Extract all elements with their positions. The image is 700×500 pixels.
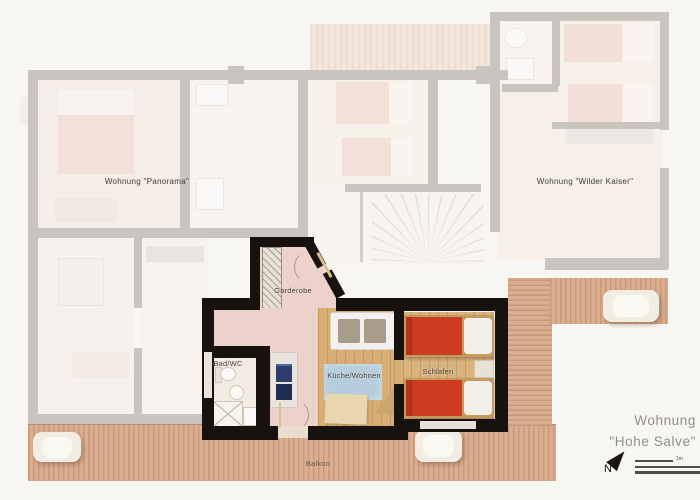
faded-kitchen-counter <box>566 128 654 144</box>
lounge-chair <box>603 290 659 322</box>
sofa-cushion <box>364 319 386 343</box>
faded-fixture <box>196 84 228 106</box>
wilder-kaiser-label: Wohnung "Wilder Kaiser" <box>520 177 650 187</box>
lounge-chair <box>33 432 81 462</box>
apartment-wall <box>212 346 258 358</box>
apartment-wall <box>308 426 408 440</box>
faded-wall <box>360 192 363 262</box>
faded-bed <box>564 24 654 62</box>
scale-bar-line <box>635 466 700 468</box>
hohe-salve-label-line1: Wohnung <box>586 410 696 431</box>
faded-wall <box>134 348 142 416</box>
faded-spiral-stairs <box>372 194 484 262</box>
balcony-door-arc <box>279 400 309 430</box>
hohe-salve-label-line2: "Hohe Salve" <box>586 431 696 452</box>
apartment-wall <box>336 298 508 311</box>
floor-plan: Wohnung "Panorama" Wohnung "Wilder Kaise… <box>0 0 700 500</box>
bad-wc-label: Bad/WC <box>204 359 252 368</box>
faded-wall <box>490 12 668 21</box>
toilet-bowl <box>220 367 236 381</box>
apartment-wall <box>202 426 278 440</box>
faded-wall <box>28 70 38 426</box>
scale-label: 1m <box>676 456 683 462</box>
faded-bed <box>336 82 412 124</box>
lounge-chair <box>415 430 462 462</box>
balcony-deck-right-vertical <box>508 278 552 426</box>
faded-wall-pier <box>228 66 244 84</box>
faded-wall <box>660 12 669 130</box>
hohe-salve-label: Wohnung "Hohe Salve" <box>586 410 696 452</box>
bed-top-blanket <box>406 317 462 355</box>
kitchen-appliance-oven <box>276 364 292 382</box>
faded-wall <box>298 78 308 230</box>
faded-sofa <box>72 352 130 378</box>
faded-counter <box>146 246 204 262</box>
faded-wall <box>345 184 481 192</box>
schlafen-label: Schlafen <box>404 367 472 376</box>
faded-wall <box>545 258 668 270</box>
apartment-wall <box>394 298 404 360</box>
bed-top-pillow <box>464 318 492 354</box>
sofa-cushion <box>338 319 360 343</box>
nightstand <box>474 360 494 378</box>
faded-bed <box>568 84 652 124</box>
balkon-label: Balkon <box>280 459 356 468</box>
apartment-wall <box>256 346 270 428</box>
bed-bottom-blanket <box>406 380 462 416</box>
apartment-wall <box>394 384 404 428</box>
faded-sofa <box>55 198 117 222</box>
kitchen-appliance-fridge <box>276 384 292 400</box>
north-label: N <box>604 463 612 475</box>
panorama-label: Wohnung "Panorama" <box>87 177 207 187</box>
faded-wall <box>660 168 669 268</box>
wardrobe <box>262 247 282 309</box>
garderobe-label: Garderobe <box>263 286 323 295</box>
apartment-wall <box>495 298 508 432</box>
faded-bed <box>58 90 134 174</box>
faded-wall <box>552 20 560 86</box>
faded-room-kitchen <box>142 238 208 416</box>
faded-bed <box>342 138 412 176</box>
faded-fixture <box>506 58 534 80</box>
hall-floor <box>212 308 318 350</box>
faded-balcony-top <box>310 24 502 72</box>
faded-wall <box>490 12 500 232</box>
faded-fixture <box>504 28 528 48</box>
balcony-door-window <box>420 421 476 429</box>
kueche-wohnen-label: Küche/Wohnen <box>314 371 394 380</box>
faded-wall <box>180 70 190 238</box>
faded-wall <box>134 238 142 308</box>
faded-wall <box>552 122 668 129</box>
faded-table <box>58 258 104 306</box>
sink <box>229 385 244 400</box>
scale-bar-line <box>635 471 700 474</box>
shower <box>213 401 243 427</box>
faded-wall <box>428 78 438 186</box>
bed-bottom-pillow <box>464 381 492 415</box>
doorway-floor <box>394 360 404 386</box>
scale-bar-line <box>635 460 673 462</box>
dining-table <box>324 393 367 424</box>
faded-wall <box>502 84 558 92</box>
entry-door-arc <box>294 250 328 284</box>
